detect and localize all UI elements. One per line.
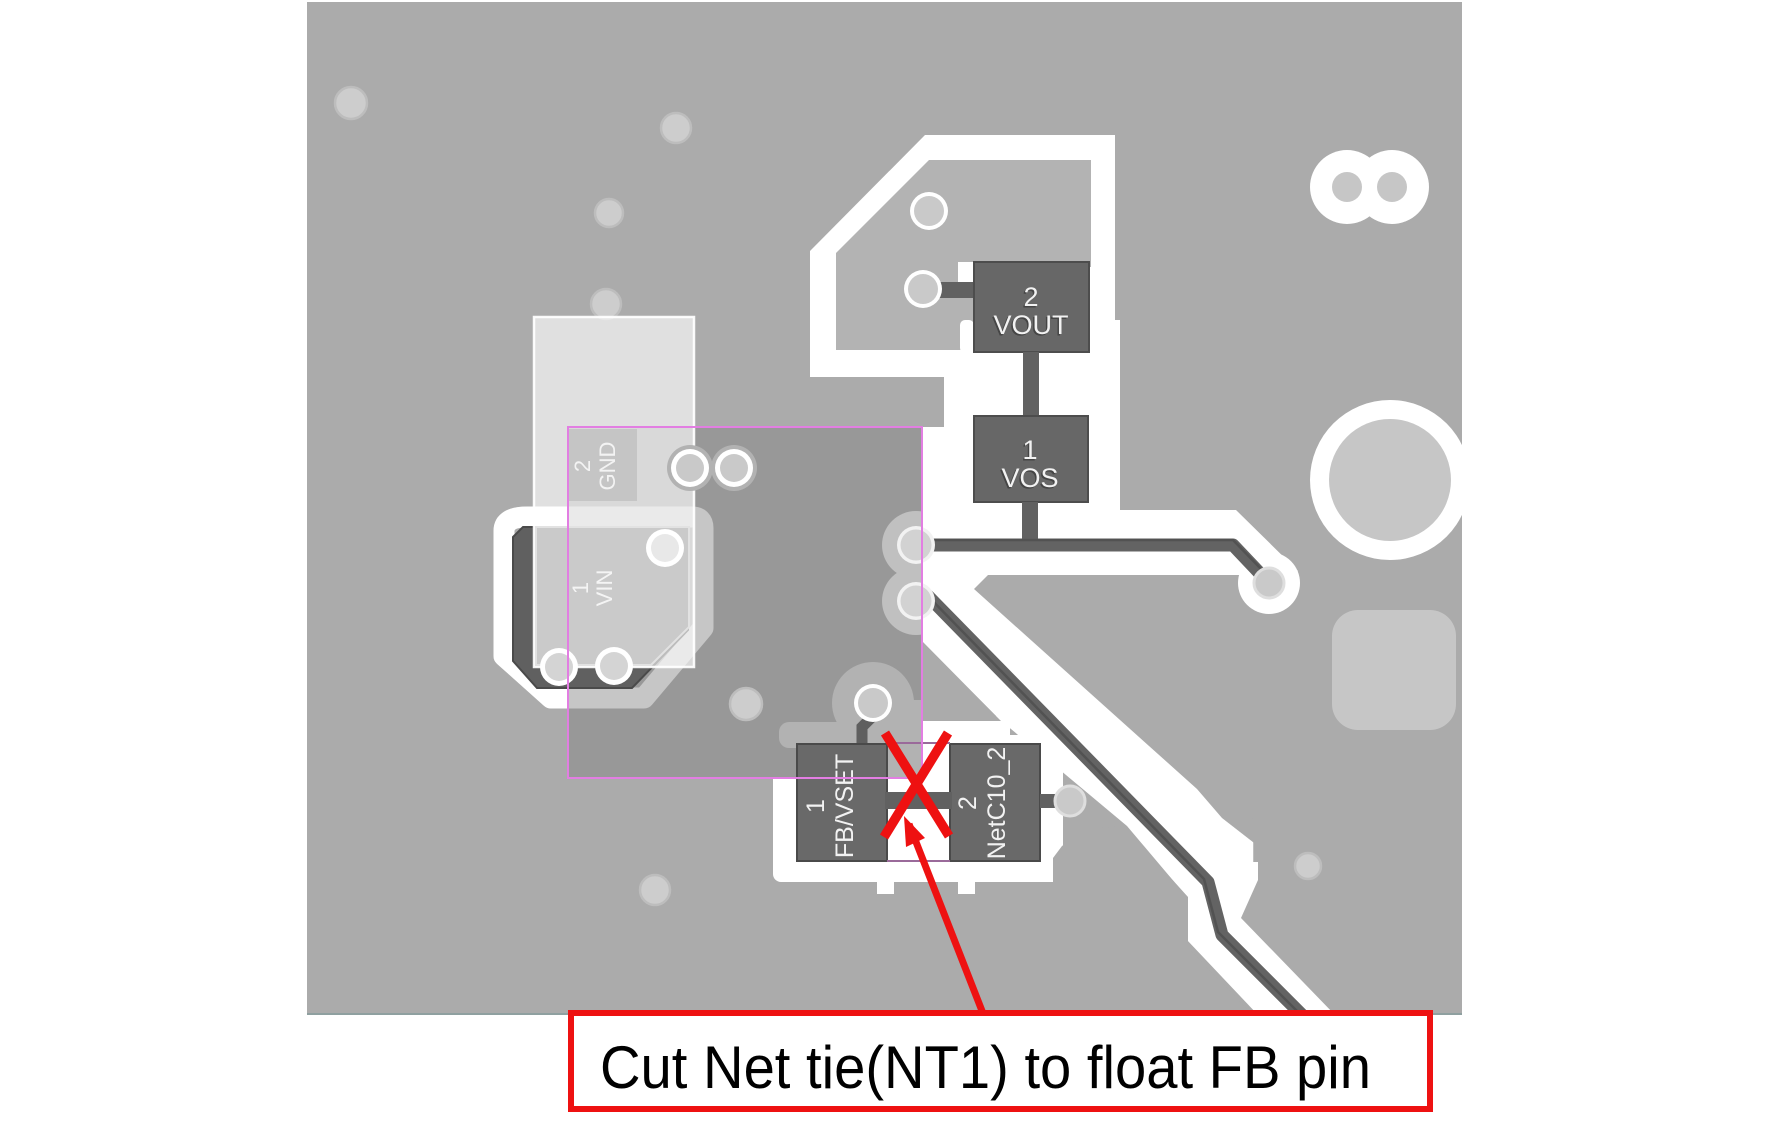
svg-text:NetC10_2: NetC10_2 bbox=[983, 747, 1011, 860]
svg-text:VOS: VOS bbox=[1001, 463, 1058, 493]
svg-text:1: 1 bbox=[802, 799, 830, 813]
svg-text:2: 2 bbox=[1023, 282, 1038, 312]
svg-text:Cut Net tie(NT1) to float FB p: Cut Net tie(NT1) to float FB pin bbox=[600, 1034, 1371, 1101]
svg-text:1: 1 bbox=[568, 582, 593, 594]
svg-text:VIN: VIN bbox=[592, 570, 617, 607]
svg-text:GND: GND bbox=[595, 442, 620, 491]
svg-text:1: 1 bbox=[1022, 435, 1037, 465]
svg-text:FB/VSET: FB/VSET bbox=[831, 754, 859, 858]
svg-text:2: 2 bbox=[570, 460, 595, 472]
svg-text:VOUT: VOUT bbox=[993, 310, 1068, 340]
svg-text:2: 2 bbox=[954, 796, 982, 810]
